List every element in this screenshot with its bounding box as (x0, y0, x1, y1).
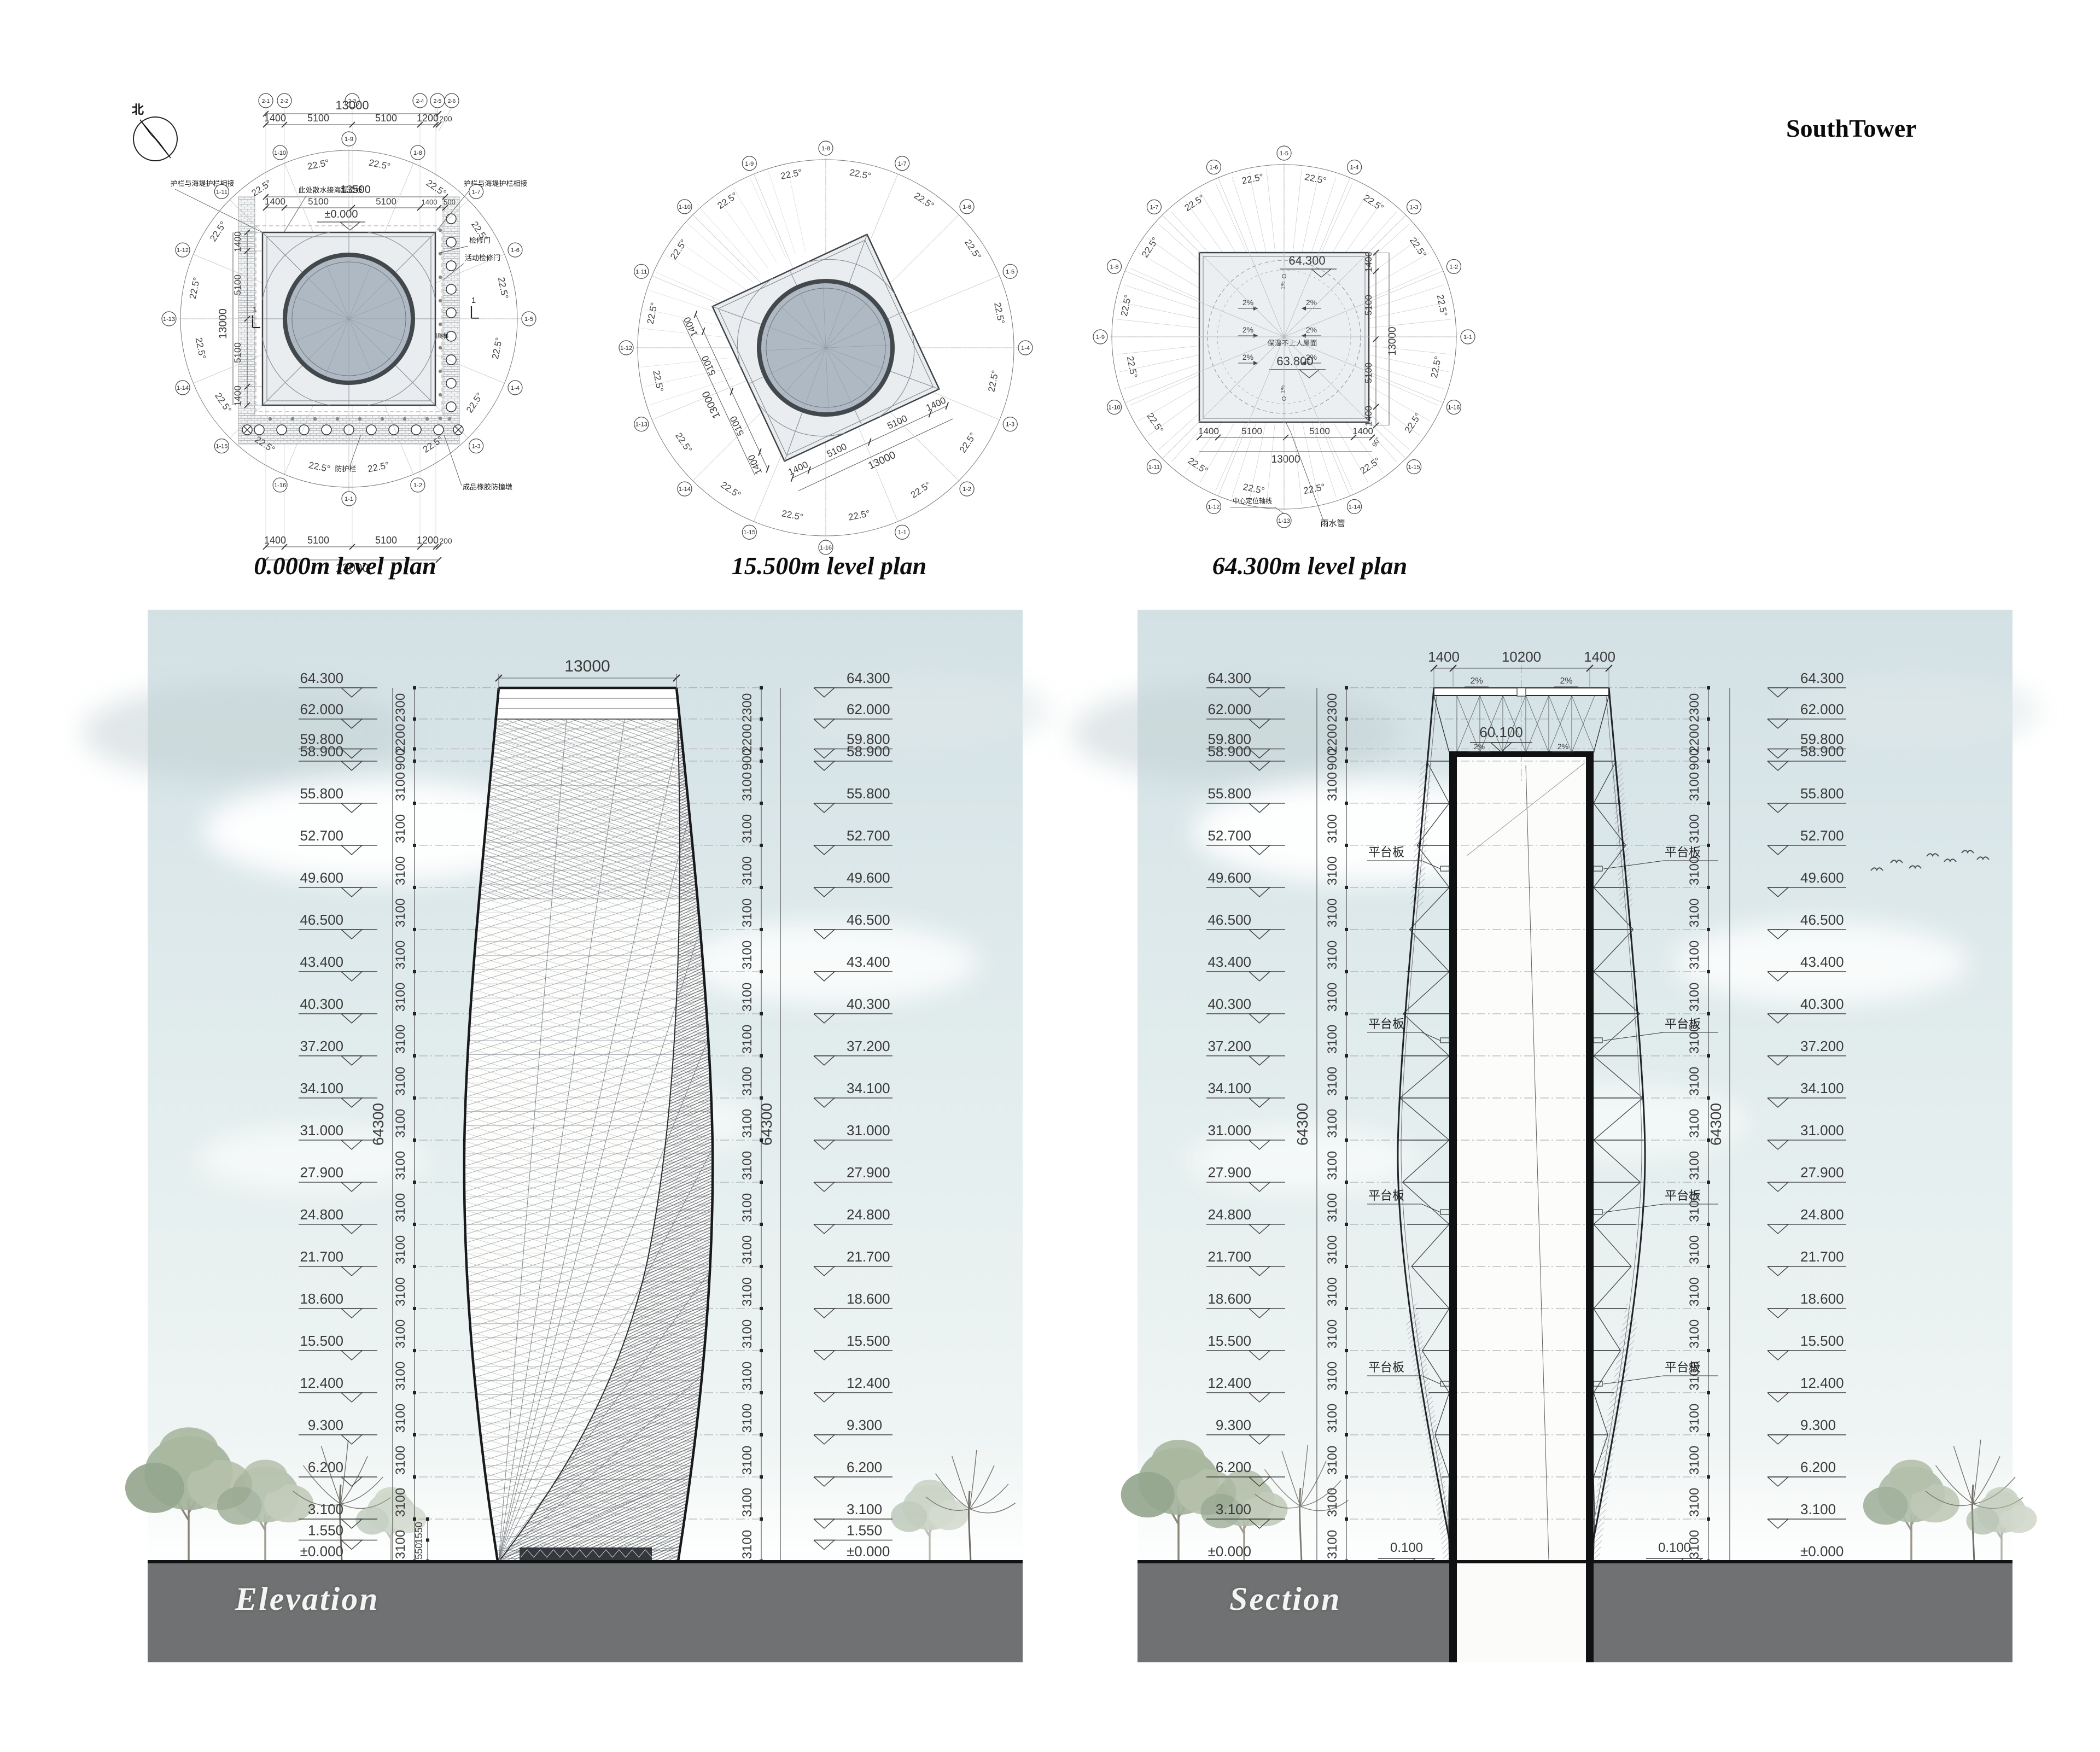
ellipse-shape (243, 1459, 288, 1493)
level-label: 40.300 (300, 996, 343, 1012)
seg-dim-label: 3100 (1687, 1067, 1702, 1096)
tick (760, 717, 763, 721)
tick (1707, 1517, 1710, 1521)
dim-label: 1400 (924, 395, 947, 413)
tick (760, 1307, 763, 1310)
tick (1345, 1012, 1348, 1015)
seg-dim-label: 2300 (1687, 693, 1702, 722)
tick (413, 1138, 416, 1142)
cut-mark: 1 (471, 296, 476, 305)
bubble-label: 1-14 (1349, 504, 1361, 510)
tick (1707, 686, 1710, 690)
seg-dim-label: 3100 (1325, 772, 1340, 801)
bubble-label: 1-9 (1096, 334, 1105, 341)
seg-dim-label: 3100 (393, 1488, 408, 1517)
tick (413, 1307, 416, 1310)
angle-label: 22.5° (490, 337, 504, 360)
seg-dim-label: 3100 (393, 856, 408, 885)
angle-label: 22.5° (208, 219, 229, 243)
tick (760, 1391, 763, 1394)
tick (1345, 1096, 1348, 1100)
platform-label: 平台板 (1368, 1360, 1404, 1374)
tick (1345, 1475, 1348, 1479)
level-label: 12.400 (300, 1375, 343, 1391)
level-label: 55.800 (1800, 785, 1844, 802)
level-label: 3.100 (847, 1501, 882, 1517)
level-label: 64.300 (1800, 670, 1844, 686)
angle-label: 22.5° (1119, 294, 1133, 317)
level-label: 49.600 (847, 869, 890, 886)
louver-band (495, 688, 680, 719)
bubble-label: 1-10 (679, 204, 691, 211)
dim-label: 1400 (422, 198, 437, 206)
level-label: 58.900 (1207, 743, 1251, 760)
tick (413, 747, 416, 751)
level-label: 43.400 (1800, 954, 1844, 970)
bubble-label: 1-10 (274, 150, 286, 156)
line (1366, 319, 1451, 329)
level-label: 34.100 (300, 1080, 343, 1096)
bubble-label: 1-9 (745, 161, 754, 167)
level-label: 37.200 (300, 1038, 343, 1054)
core-wall (1449, 755, 1457, 1661)
dot (269, 417, 272, 421)
bubble-label: 1-15 (1408, 464, 1420, 471)
level-label: 18.600 (300, 1290, 343, 1307)
angle-label: 22.5° (1140, 236, 1160, 260)
seg-dim-label: 3100 (393, 814, 408, 843)
seg-dim-label: 3100 (740, 856, 755, 885)
angle-label: 22.5° (986, 370, 1000, 393)
seg-dim-label: 3100 (1325, 814, 1340, 843)
dim-label: 13000 (1387, 327, 1398, 356)
sheet-title: SouthTower (1786, 114, 1917, 143)
seg-dim-label: 3100 (740, 1404, 755, 1433)
line (733, 187, 777, 263)
seg-dim-label: 3100 (740, 1319, 755, 1348)
line (750, 178, 786, 258)
angle-label: 22.5° (1186, 455, 1210, 476)
bubble-label: 1-13 (1278, 518, 1290, 524)
seg-dim-label: 3100 (1687, 1446, 1702, 1475)
dim-label: 200 (439, 536, 452, 545)
dim-label: 1400 (1352, 426, 1373, 436)
level-label: 64.300 (1288, 254, 1325, 267)
tick (760, 1181, 763, 1184)
angle-label: 22.5° (1303, 482, 1326, 496)
bubble-label: 1-15 (215, 443, 227, 450)
bollard (389, 425, 399, 435)
level-label: 12.400 (1207, 1375, 1251, 1391)
plan-caption-64m: 64.300m level plan (1189, 551, 1430, 580)
level-label: 34.100 (1800, 1080, 1844, 1096)
bubble-label: 1-8 (413, 150, 422, 156)
seg-dim-label: 3100 (1687, 1235, 1702, 1264)
dim-label: 1200 (417, 535, 439, 546)
seg-dim-label: 1550 (413, 1522, 424, 1544)
seg-dim-label: 3100 (740, 1193, 755, 1222)
level-label: 9.300 (1216, 1417, 1251, 1433)
cut-mark: 1 (253, 305, 257, 314)
dim-label: 1400 (264, 535, 286, 546)
tick (1345, 717, 1348, 721)
tick (1707, 886, 1710, 889)
bubble-label: 1-6 (1209, 165, 1218, 171)
level-label: 24.800 (300, 1206, 343, 1223)
bubble-label: 1-2 (413, 482, 422, 489)
tick (413, 1433, 416, 1436)
elevation-caption: Elevation (235, 1580, 380, 1618)
angle-label: 22.5° (213, 391, 234, 415)
level-label: 43.400 (300, 954, 343, 970)
bubble-label: 1-3 (472, 443, 481, 450)
platform-label: 平台板 (1368, 1189, 1404, 1202)
tick (413, 760, 416, 763)
bollard (254, 425, 264, 435)
tick (1707, 717, 1710, 721)
seg-dim-label: 3100 (740, 983, 755, 1012)
core-wall (1586, 755, 1594, 1661)
level-label: 40.300 (1207, 996, 1251, 1012)
bollard (299, 425, 309, 435)
line (1301, 172, 1319, 257)
dot (313, 417, 317, 421)
bubble-label: 1-16 (1448, 405, 1460, 411)
seg-dim-label: 3100 (393, 1151, 408, 1180)
tick (1345, 1433, 1348, 1436)
dim-label: 5100 (376, 196, 396, 207)
angle-label: 22.5° (719, 480, 743, 500)
seg-dim-label: 3100 (393, 772, 408, 801)
tick (413, 1475, 416, 1479)
tick (1345, 928, 1348, 931)
level-label: 46.500 (1207, 912, 1251, 928)
radial-grid: 1-522.5°1-622.5°1-722.5°1-822.5°1-922.5°… (1093, 145, 1475, 528)
level-label: 6.200 (308, 1459, 343, 1475)
level-label: 18.600 (847, 1290, 890, 1307)
level-label: 37.200 (847, 1038, 890, 1054)
level-label: 46.500 (847, 912, 890, 928)
angle-label: 22.5° (249, 178, 273, 198)
overall-dim-label: 64300 (370, 1103, 387, 1146)
tick (426, 1538, 429, 1541)
seg-dim-label: 900 (393, 749, 408, 770)
ellipse-shape (912, 1480, 948, 1507)
tower-mesh (454, 688, 722, 1564)
bollard (446, 378, 456, 388)
tick (413, 1012, 416, 1015)
dim-label: 1400 (265, 196, 285, 207)
dim-label: 1200 (417, 113, 439, 124)
line (641, 358, 728, 367)
tick (413, 1517, 416, 1521)
line (1232, 177, 1259, 259)
bubble-label: 2-5 (434, 98, 442, 104)
bubble-label: 1-6 (511, 247, 520, 254)
seg-dim-label: 3100 (393, 1025, 408, 1054)
dim-label: 13000 (700, 389, 722, 421)
bollard (411, 425, 421, 435)
tick (1345, 1349, 1348, 1352)
level-label: 15.500 (1207, 1333, 1251, 1349)
angle-label: 22.5° (1408, 236, 1428, 260)
bubble-label: 1-6 (962, 204, 971, 211)
level-label: ±0.000 (300, 1543, 343, 1560)
angle-label: 22.5° (962, 237, 983, 261)
level-label: 46.500 (1800, 912, 1844, 928)
level-label: 60.100 (1479, 724, 1523, 740)
level-label: 62.000 (847, 701, 890, 717)
level-label: 6.200 (1216, 1459, 1251, 1475)
angle-label: 22.5° (912, 190, 936, 211)
dim-label: 1400 (682, 316, 700, 338)
dot (439, 323, 442, 326)
dot (439, 229, 442, 232)
level-label: 43.400 (1207, 954, 1251, 970)
ellipse-shape (217, 1487, 262, 1525)
dim-label: 1400 (786, 459, 809, 477)
dim-label: 1400 (232, 386, 243, 406)
tick (1345, 844, 1348, 847)
bubble-label: 1-10 (1109, 405, 1121, 411)
angle-label: 22.5° (909, 480, 933, 500)
tick (1345, 1307, 1348, 1310)
sheet-svg: 1300064.30064.30062.00062.00059.80059.80… (0, 0, 2100, 1752)
tick (760, 970, 763, 973)
bubble-label: 1-9 (345, 136, 353, 143)
bollard (446, 308, 456, 318)
level-label: 24.800 (1800, 1206, 1844, 1223)
seg-dim-label: 3100 (1687, 856, 1702, 885)
bubble-label: 1-7 (472, 189, 481, 195)
angle-label: 22.5° (308, 460, 331, 474)
seg-dim-label: 3100 (740, 1151, 755, 1180)
tick (1345, 886, 1348, 889)
seg-dim-label: 3100 (393, 1362, 408, 1391)
seg-dim-label: 3100 (1687, 1109, 1702, 1138)
level-label: 58.900 (1800, 743, 1844, 760)
level-label: 62.000 (1207, 701, 1251, 717)
dim-label: 5100 (1363, 363, 1374, 383)
seg-dim-label: 3100 (1325, 1530, 1340, 1559)
dim-label: 1400 (232, 231, 243, 252)
bollard (434, 425, 444, 435)
dot (439, 346, 442, 349)
tick (1345, 686, 1348, 690)
bubble-label: 1-13 (163, 316, 175, 323)
bubble-label: 1-12 (177, 247, 189, 254)
level-label: 15.500 (300, 1333, 343, 1349)
bubble-label: 1-15 (743, 529, 755, 536)
dim-label: 13000 (564, 657, 610, 675)
seg-dim-label: 900 (1687, 749, 1702, 770)
angle-label: 22.5° (496, 276, 510, 300)
overall-dim-label: 64300 (1294, 1103, 1311, 1146)
dim-label: 5100 (728, 414, 746, 437)
bollard (277, 425, 287, 435)
angle-label: 22.5° (645, 301, 660, 325)
tick (413, 1349, 416, 1352)
bubble-label: 1-8 (1110, 264, 1119, 270)
bubble-label: 1-4 (511, 385, 520, 392)
level-label: 49.600 (300, 869, 343, 886)
dot (291, 417, 294, 421)
tick (760, 1138, 763, 1142)
level-label: 21.700 (847, 1248, 890, 1265)
line (1117, 319, 1203, 329)
line (866, 439, 873, 446)
bubble-label: 2-6 (448, 98, 456, 104)
tick (760, 844, 763, 847)
angle-label: 22.5° (1242, 482, 1265, 496)
level-label: 3.100 (1216, 1501, 1251, 1517)
angle-label: 22.5° (1183, 192, 1207, 213)
bubble-label: 1-7 (898, 161, 907, 167)
seg-dim-label: 3100 (740, 1446, 755, 1475)
north-compass: 北 (132, 103, 177, 161)
tick (1345, 1054, 1348, 1058)
platform-label: 平台板 (1368, 845, 1404, 859)
bollard (446, 284, 456, 294)
level-label: 52.700 (1207, 827, 1251, 844)
dot (381, 417, 384, 421)
dim-label: 5100 (1241, 426, 1262, 436)
ground-line (1137, 1560, 2012, 1563)
dim-label: 5100 (375, 535, 397, 546)
bubble-label: 2-4 (416, 98, 424, 104)
dim-label: 1400 (1584, 649, 1615, 665)
line (641, 328, 728, 337)
level-label: 6.200 (847, 1459, 882, 1475)
seg-dim-label: 3100 (1687, 1277, 1702, 1306)
level-label: 9.300 (847, 1417, 882, 1433)
angle-label: 22.5° (368, 157, 392, 172)
dim-label: 1400 (1198, 426, 1219, 436)
line (1249, 172, 1267, 257)
seg-dim-label: 3100 (1687, 1319, 1702, 1348)
dot (439, 393, 442, 396)
dim-label: 5100 (375, 113, 397, 124)
ellipse-shape (159, 1427, 218, 1471)
tick (426, 1517, 429, 1521)
elevation-tower (454, 688, 722, 1564)
cloud (684, 921, 979, 1003)
seg-dim-label: 3100 (740, 1025, 755, 1054)
ellipse-shape (1967, 1507, 1999, 1535)
tick (1707, 970, 1710, 973)
seg-dim-label: 3100 (740, 1488, 755, 1517)
level-label: 3.100 (308, 1501, 343, 1517)
seg-dim-label: 3100 (1687, 898, 1702, 927)
seg-dim-label: 3100 (393, 1277, 408, 1306)
tick (413, 802, 416, 805)
slope-label: 2% (1557, 742, 1568, 751)
level-label: 62.000 (1800, 701, 1844, 717)
angle-label: 22.5° (194, 337, 208, 360)
line (728, 388, 735, 395)
tick (1707, 760, 1710, 763)
angle-label: 22.5° (1435, 294, 1449, 317)
seg-dim-label: 3100 (1687, 1404, 1702, 1433)
tick (1707, 1433, 1710, 1436)
tick (1345, 970, 1348, 973)
north-label: 北 (132, 103, 144, 116)
dim-label: 1400 (1363, 252, 1374, 272)
section-caption: Section (1229, 1580, 1341, 1618)
tick (1707, 1349, 1710, 1352)
line (1364, 302, 1449, 320)
level-label: 12.400 (1800, 1375, 1844, 1391)
level-label: 15.500 (1800, 1333, 1844, 1349)
dot (439, 299, 442, 302)
bubble-label: 1-3 (1410, 204, 1419, 211)
level-label: 52.700 (847, 827, 890, 844)
level-label: 62.000 (300, 701, 343, 717)
shaft-below-ground (1457, 1563, 1586, 1662)
seg-dim-label: 3100 (1687, 1151, 1702, 1180)
slope-label: 2% (1242, 353, 1253, 361)
dim-label: 13000 (217, 308, 229, 339)
seg-dim-label: 3100 (393, 1067, 408, 1096)
ground-line (148, 1560, 1023, 1563)
slope-label: 1% (1280, 282, 1286, 290)
dim-label: 5100 (307, 113, 329, 124)
bubble-label: 1-12 (1207, 504, 1220, 510)
tick (760, 1012, 763, 1015)
seg-dim-label: 3100 (740, 1277, 755, 1306)
dim-label: 5100 (886, 413, 909, 431)
bubble-label: 1-16 (274, 482, 286, 489)
angle-label: 22.5° (1125, 355, 1139, 379)
seg-dim-label: 3100 (740, 1067, 755, 1096)
level-label: 34.100 (1207, 1080, 1251, 1096)
dot (439, 276, 442, 279)
bubble-label: 1-7 (1150, 204, 1158, 211)
level-label: 55.800 (300, 785, 343, 802)
level-label: 27.900 (847, 1164, 890, 1181)
level-label: 0.100 (1658, 1540, 1691, 1555)
bollard (366, 425, 376, 435)
seg-dim-label: 3100 (1325, 1025, 1340, 1054)
angle-label: 22.5° (464, 391, 485, 415)
seg-dim-label: 3100 (393, 1446, 408, 1475)
bubble-label: 1-5 (1280, 150, 1288, 157)
seg-dim-label: 3100 (1687, 1025, 1702, 1054)
seg-dim-label: 2300 (740, 693, 755, 722)
seg-dim-label: 3100 (393, 941, 408, 970)
note-label: 中心定位轴线 (1233, 497, 1272, 505)
line (1309, 177, 1336, 259)
tick (760, 747, 763, 751)
dim-label: 200 (439, 114, 452, 123)
dim-label: 13000 (335, 98, 369, 112)
tick (1707, 1181, 1710, 1184)
angle-label: 22.5° (848, 508, 871, 522)
angle-label: 22.5° (367, 460, 390, 474)
angle-label: 22.5° (424, 178, 448, 198)
tick (1707, 1096, 1710, 1100)
seg-dim-label: 3100 (393, 1193, 408, 1222)
level-label: 52.700 (1800, 827, 1844, 844)
bubble-label: 1-3 (1006, 422, 1014, 428)
tick (1707, 1265, 1710, 1268)
seg-dim-label: 3100 (393, 1530, 408, 1559)
dot (358, 417, 361, 421)
tick (413, 717, 416, 721)
note-label: 此处散水接海堤边线 (298, 186, 362, 194)
level-label: 24.800 (1207, 1206, 1251, 1223)
seg-dim-label: 3100 (393, 898, 408, 927)
